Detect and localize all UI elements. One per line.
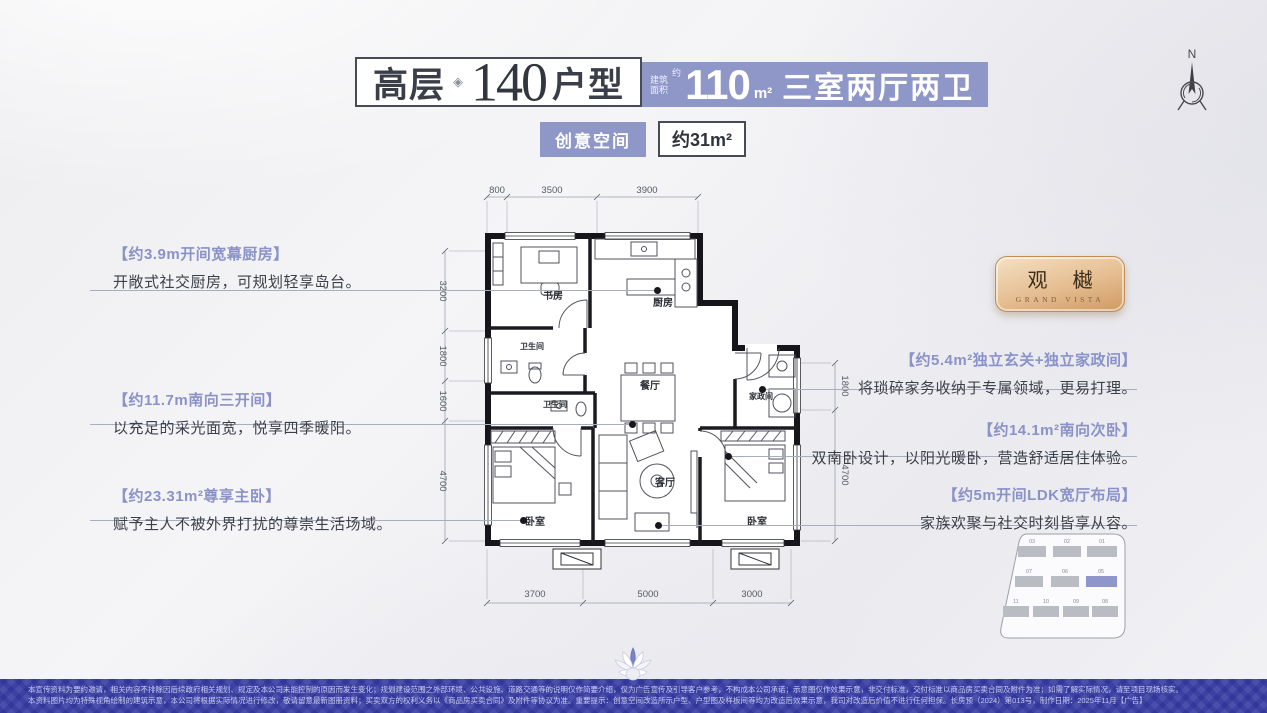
room-living: 客厅 xyxy=(654,476,675,489)
block-label: 06 xyxy=(1062,569,1068,575)
dim-bottom-5000: 5000 xyxy=(637,589,658,600)
floorplan: 800 3500 3900 3200 1800 1600 4700 1800 4… xyxy=(435,183,915,631)
sub-badges: 创意空间 约31m² xyxy=(540,121,746,157)
dim-top-3500: 3500 xyxy=(541,185,562,196)
compass-n-label: N xyxy=(1188,47,1197,61)
leader-dot-bays xyxy=(629,421,636,428)
block-label: 09 xyxy=(1073,599,1079,605)
callout-body: 开敞式社交厨房，可规划轻享岛台。 xyxy=(113,271,361,292)
siteplan: 03 02 01 07 06 05 11 10 09 08 xyxy=(993,528,1133,646)
dim-bottom-3700: 3700 xyxy=(524,589,545,600)
project-logo-badge: 观 樾 GRAND VISTA xyxy=(995,256,1125,312)
dim-bottom-3000: 3000 xyxy=(741,589,762,600)
leader-dot-master xyxy=(520,517,527,524)
callout-ldk: 【约5m开间LDK宽厅布局】 家族欢聚与社交时刻皆享从容。 xyxy=(920,484,1137,533)
callout-bays: 【约11.7m南向三开间】 以充足的采光面宽，悦享四季暖阳。 xyxy=(113,389,361,438)
project-name: 观 樾 xyxy=(1018,264,1103,293)
unit-type-title: 高层 ◈ 140 户型 xyxy=(355,57,642,107)
area-value: 110 xyxy=(685,64,750,106)
dim-right-1800: 1800 xyxy=(839,375,850,396)
dim-left-1600: 1600 xyxy=(437,390,448,411)
callout-title: 【约23.31m²尊享主卧】 xyxy=(113,485,392,506)
header-title-row: 高层 ◈ 140 户型 建筑 面积 约 110 m² 三室两厅两卫 xyxy=(355,57,988,107)
callout-body: 赋予主人不被外界打扰的尊崇生活场域。 xyxy=(113,513,392,534)
room-bath1: 卫生间 xyxy=(520,341,544,351)
block-label: 11 xyxy=(1013,599,1019,605)
area-approx: 约 xyxy=(672,66,681,79)
type-number: 140 xyxy=(471,54,546,109)
project-name-en: GRAND VISTA xyxy=(1016,295,1104,304)
creative-area-badge: 约31m² xyxy=(658,121,746,157)
leader-dot-second-bed xyxy=(725,453,732,460)
block-label: 01 xyxy=(1099,539,1105,545)
callout-kitchen: 【约3.9m开间宽幕厨房】 开敞式社交厨房，可规划轻享岛台。 xyxy=(113,243,361,292)
room-bath2: 卫生间 xyxy=(543,399,567,409)
room-dining: 餐厅 xyxy=(639,379,660,392)
callout-title: 【约5.4m²独立玄关+独立家政间】 xyxy=(858,349,1137,370)
type-label: 高层 xyxy=(373,57,445,108)
block-label: 05 xyxy=(1098,569,1104,575)
callout-title: 【约3.9m开间宽幕厨房】 xyxy=(113,243,361,264)
ac-platforms xyxy=(553,549,779,569)
leader-dot-foyer xyxy=(759,386,766,393)
disclaimer-line-1: 本宣传资料为要约邀请，相关内容不排除因后续政府相关规划、规定及本公司未能控制的原… xyxy=(28,684,1239,695)
area-banner: 建筑 面积 约 110 m² 三室两厅两卫 xyxy=(642,62,988,107)
callout-title: 【约5m开间LDK宽厅布局】 xyxy=(920,484,1137,505)
disclaimer-line-2: 本资料图片均为特殊视角绘制的建筑示意，本公司将根据实际情况进行修改，敬请留意最新… xyxy=(28,695,1239,706)
callout-second-bed: 【约14.1m²南向次卧】 双南卧设计，以阳光暖卧，营造舒适居住体验。 xyxy=(811,419,1137,468)
room-bed-second: 卧室 xyxy=(747,515,767,528)
dim-left-4700: 4700 xyxy=(437,470,448,491)
block-label: 07 xyxy=(1026,569,1032,575)
callout-body: 以充足的采光面宽，悦享四季暖阳。 xyxy=(113,417,361,438)
highlighted-block xyxy=(1086,576,1117,587)
disclaimer-footer: 本宣传资料为要约邀请，相关内容不排除因后续政府相关规划、规定及本公司未能控制的原… xyxy=(0,679,1267,713)
callout-foyer: 【约5.4m²独立玄关+独立家政间】 将琐碎家务收纳于专属领域，更易打理。 xyxy=(858,349,1137,398)
block-label: 03 xyxy=(1029,539,1035,545)
block-label: 08 xyxy=(1102,599,1108,605)
room-kitchen: 厨房 xyxy=(653,296,673,309)
block-label: 10 xyxy=(1043,599,1049,605)
callout-title: 【约14.1m²南向次卧】 xyxy=(811,419,1137,440)
area-unit: m² xyxy=(754,85,772,102)
callout-body: 双南卧设计，以阳光暖卧，营造舒适居住体验。 xyxy=(811,447,1137,468)
callout-master: 【约23.31m²尊享主卧】 赋予主人不被外界打扰的尊崇生活场域。 xyxy=(113,485,392,534)
leader-dot-kitchen xyxy=(654,287,661,294)
creative-space-badge: 创意空间 xyxy=(540,122,646,157)
layout-text: 三室两厅两卫 xyxy=(782,63,974,107)
callout-body: 将琐碎家务收纳于专属领域，更易打理。 xyxy=(858,377,1137,398)
dim-lines-top xyxy=(484,194,701,233)
leader-dot-ldk xyxy=(655,522,662,529)
callout-title: 【约11.7m南向三开间】 xyxy=(113,389,361,410)
area-prefix: 建筑 面积 xyxy=(650,75,668,95)
room-bed-master: 卧室 xyxy=(525,515,545,528)
ornament-icon: ◈ xyxy=(453,74,463,90)
dim-top-3900: 3900 xyxy=(636,185,657,196)
lotus-icon xyxy=(607,644,659,684)
dim-left-3200: 3200 xyxy=(437,280,448,301)
block-label: 02 xyxy=(1064,539,1070,545)
type-suffix: 户型 xyxy=(552,57,624,108)
compass-icon: N xyxy=(1166,44,1218,118)
dim-left-1800: 1800 xyxy=(437,345,448,366)
dim-top-800: 800 xyxy=(489,185,505,196)
